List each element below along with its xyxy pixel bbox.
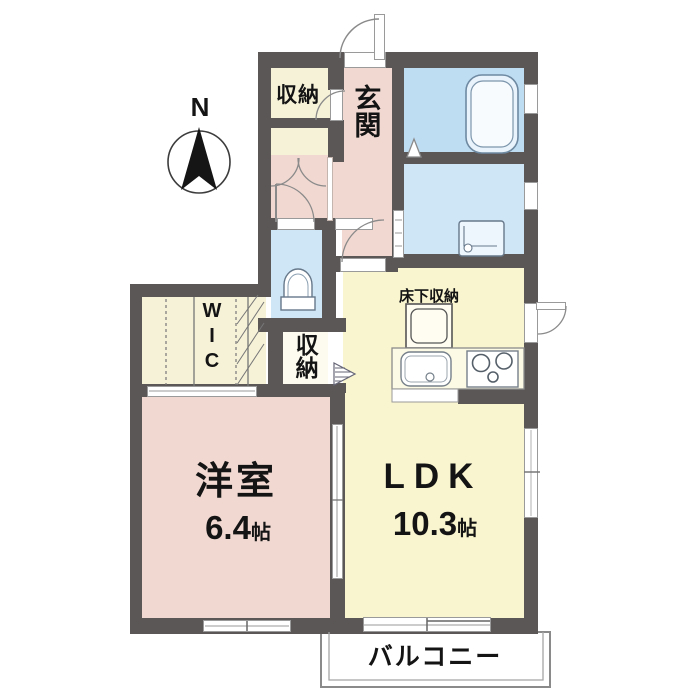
wall-below-storage-top: [266, 118, 330, 128]
wall-entrance-storage-lower: [328, 120, 344, 162]
wall-washroom-bottom: [398, 254, 524, 268]
ldk-side-door-leaf: [536, 302, 566, 310]
entrance-label: 玄関: [351, 84, 379, 138]
entrance-step-line: [327, 157, 333, 221]
wall-kitchen-stub: [458, 388, 524, 404]
ldk-window: [524, 428, 538, 518]
wall-right: [524, 52, 538, 634]
front-door-leaf: [374, 14, 385, 60]
underfloor-storage-label: 床下収納: [390, 289, 468, 305]
storage-top-label: 収納: [266, 85, 330, 107]
room-washroom-floor: [402, 164, 526, 256]
ldk-size: 10.3帖: [355, 507, 515, 542]
balcony-sliding-door: [363, 617, 491, 632]
room-bath-floor: [402, 66, 526, 156]
western-ldk-sliding-door: [332, 424, 343, 579]
storage-top-door-opening: [330, 89, 343, 121]
hallway-floor: [269, 155, 346, 222]
ldk-door-opening: [340, 258, 386, 272]
western-room-window: [203, 620, 291, 632]
wall-entrance-storage-upper: [328, 52, 344, 90]
washroom-sliding-door: [393, 210, 404, 258]
wall-hall-storage-left: [268, 330, 283, 390]
compass-icon: [168, 127, 230, 193]
wall-toilet-right: [322, 218, 336, 332]
ldk-size-value: 10.3: [393, 505, 457, 542]
washroom-window: [524, 182, 538, 210]
wall-top-lower-block: [130, 284, 271, 297]
compass-north-label: N: [185, 94, 215, 121]
room-western-floor: [142, 395, 332, 620]
balcony-label: バルコニー: [340, 644, 530, 670]
bath-window: [524, 84, 538, 114]
ldk-name: LDK: [355, 459, 511, 496]
room-toilet-floor: [271, 228, 324, 320]
ldk-side-door-arc: [538, 306, 566, 334]
entrance-step-board: [335, 218, 373, 230]
western-room-size-value: 6.4: [205, 509, 251, 546]
wic-label: WIC: [201, 300, 222, 375]
room-ldk-floor: [343, 266, 526, 620]
wic-sliding-door: [147, 386, 257, 397]
western-room-name: 洋室: [158, 463, 314, 503]
toilet-door-opening: [277, 218, 315, 230]
wall-bath-washroom: [402, 152, 524, 164]
ldk-size-unit: 帖: [457, 518, 477, 540]
western-room-size: 6.4帖: [158, 511, 318, 546]
hall-storage-label: 収納: [293, 333, 317, 379]
floor-plan: N 収納 玄関 収納 WIC 床下収納 洋室 6.4帖 LDK 10.3帖 バル…: [0, 0, 700, 700]
western-room-size-unit: 帖: [251, 522, 271, 544]
wall-left-lower: [130, 284, 142, 634]
